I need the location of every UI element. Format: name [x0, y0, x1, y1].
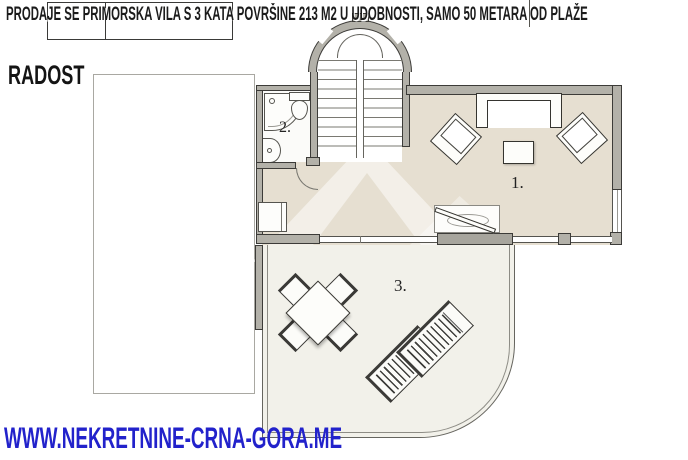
stairwell-left-wall: [310, 66, 318, 165]
stairwell-right-wall: [402, 66, 410, 147]
south-window-a-mullion: [360, 236, 361, 243]
sink-drain-dot: [267, 148, 272, 153]
bathroom-top-wall: [256, 85, 318, 91]
south-window-a: [320, 236, 437, 243]
south-wall-segment-b: [437, 233, 513, 245]
east-window: [612, 190, 622, 232]
south-window-b: [513, 236, 558, 243]
agency-website-text: WWW.NEKRETNINE-CRNA-GORA.ME: [4, 422, 342, 456]
living-room-label: 1.: [511, 173, 524, 193]
agency-brand-text: RADOST: [8, 60, 84, 91]
bathroom-label: 2.: [279, 119, 291, 137]
hall-cabinet-line: [281, 203, 282, 231]
shower-head-dot: [269, 98, 275, 104]
sofa: [476, 93, 562, 128]
stair-stringer: [356, 60, 364, 158]
sofa-seat: [487, 100, 551, 128]
south-post: [558, 233, 571, 245]
coffee-table: [503, 141, 534, 164]
stair-wall-end-cap: [306, 157, 320, 166]
terrace-left-wall: [255, 245, 263, 330]
toilet-bowl: [291, 100, 308, 120]
listing-title-text: PRODAJE SE PRIMORSKA VILA S 3 KATA POVRŠ…: [6, 4, 588, 26]
bathroom-bottom-wall: [256, 162, 296, 169]
toilet-icon: [289, 92, 310, 120]
east-wall: [612, 85, 622, 190]
south-window-c: [571, 236, 612, 243]
terrace-label: 3.: [394, 276, 407, 296]
east-window-glass-line: [617, 190, 618, 232]
hall-cabinet: [258, 202, 287, 232]
floorplan-image: 1. 2. 3. PRODAJE SE PRIMORSKA VILA S 3 K…: [0, 0, 688, 460]
south-wall-segment-a: [256, 234, 320, 244]
pool-outline: [93, 74, 255, 394]
